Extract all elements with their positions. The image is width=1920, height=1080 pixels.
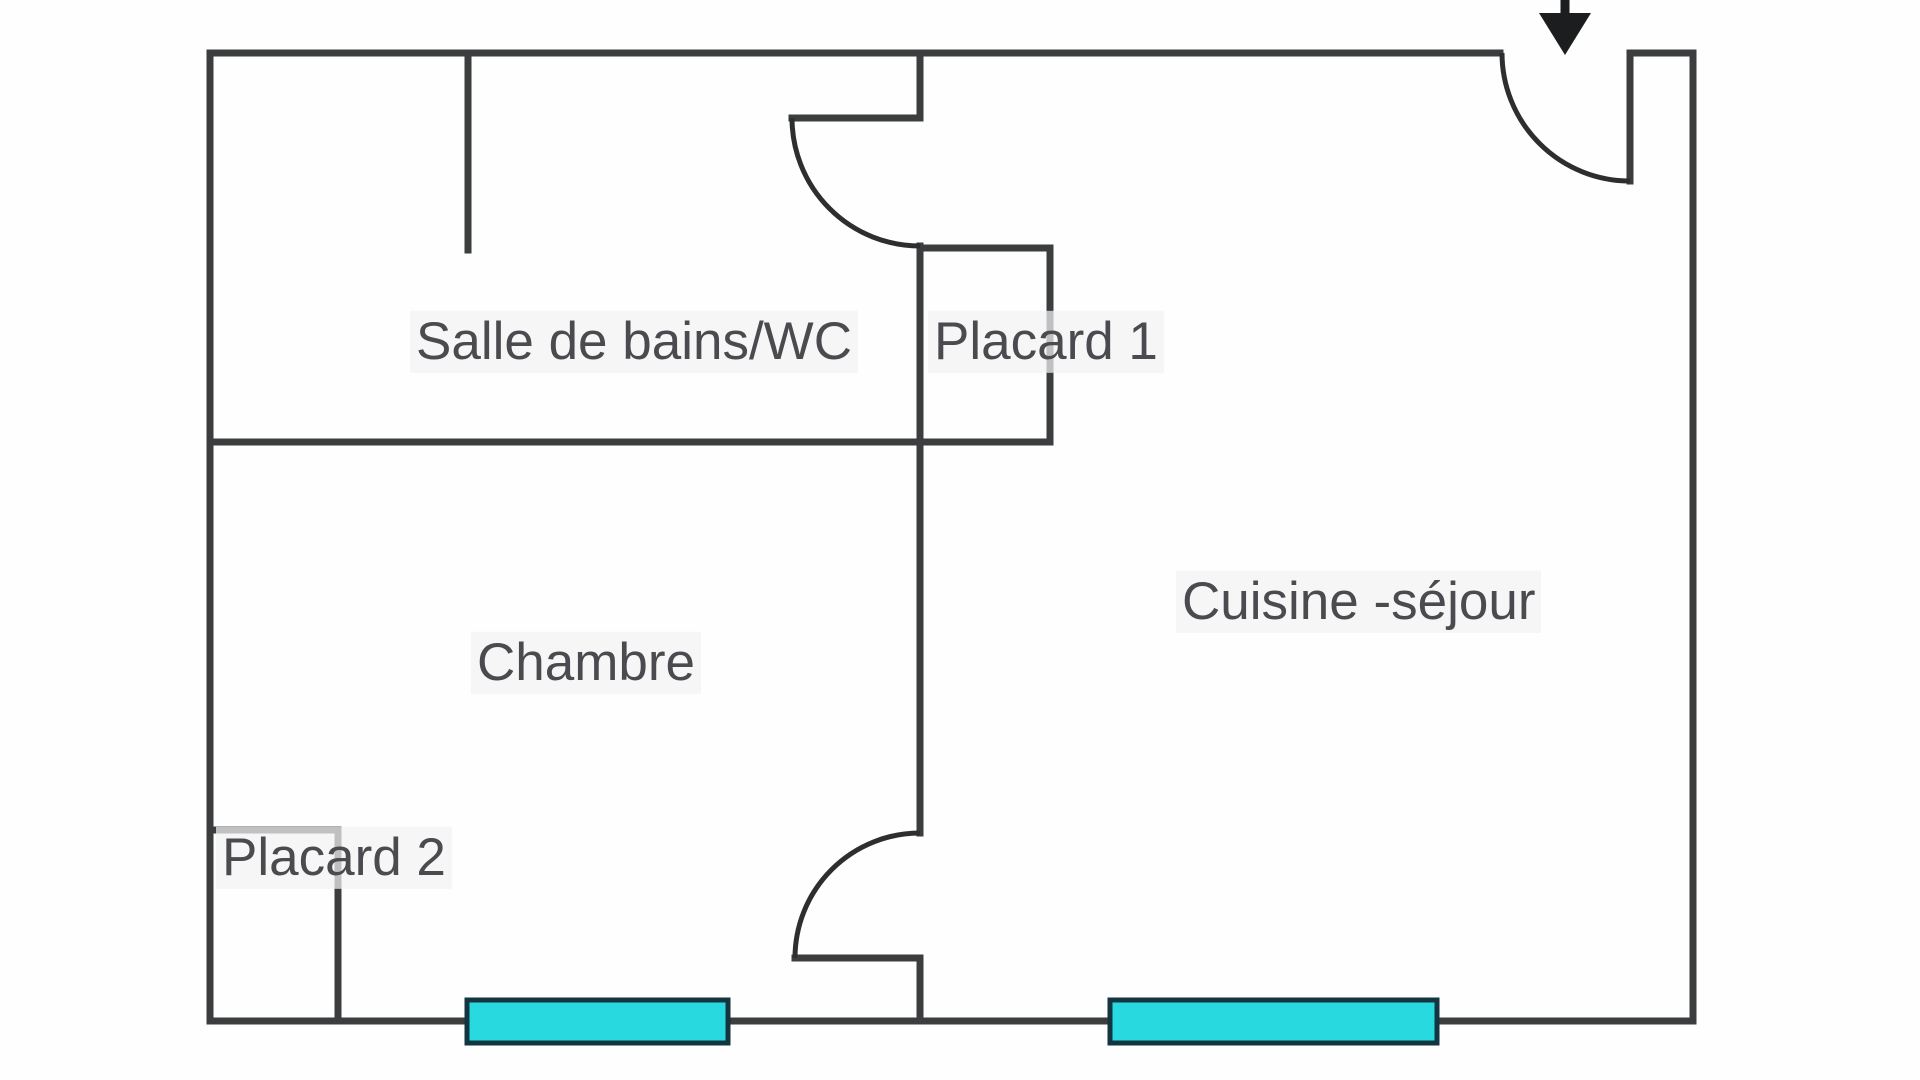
floor-plan: Salle de bains/WC Placard 1 Chambre Plac… — [0, 0, 1920, 1080]
floor-plan-svg — [0, 0, 1920, 1080]
room-label-bedroom: Chambre — [471, 632, 701, 694]
bedroom-window — [467, 1000, 728, 1043]
room-label-closet2: Placard 2 — [216, 827, 452, 889]
kitchen-window — [1110, 1000, 1437, 1043]
room-label-bathroom: Salle de bains/WC — [410, 311, 858, 373]
bedroom-door-swing-arc — [795, 833, 920, 958]
room-label-kitchen-living: Cuisine -séjour — [1176, 571, 1541, 633]
bathroom-door-swing-arc — [792, 118, 920, 246]
room-label-closet1: Placard 1 — [928, 311, 1164, 373]
entrance-arrow-head — [1539, 13, 1591, 55]
entrance-door-swing-arc — [1502, 53, 1630, 181]
entrance-arrow-icon — [1539, 0, 1591, 55]
